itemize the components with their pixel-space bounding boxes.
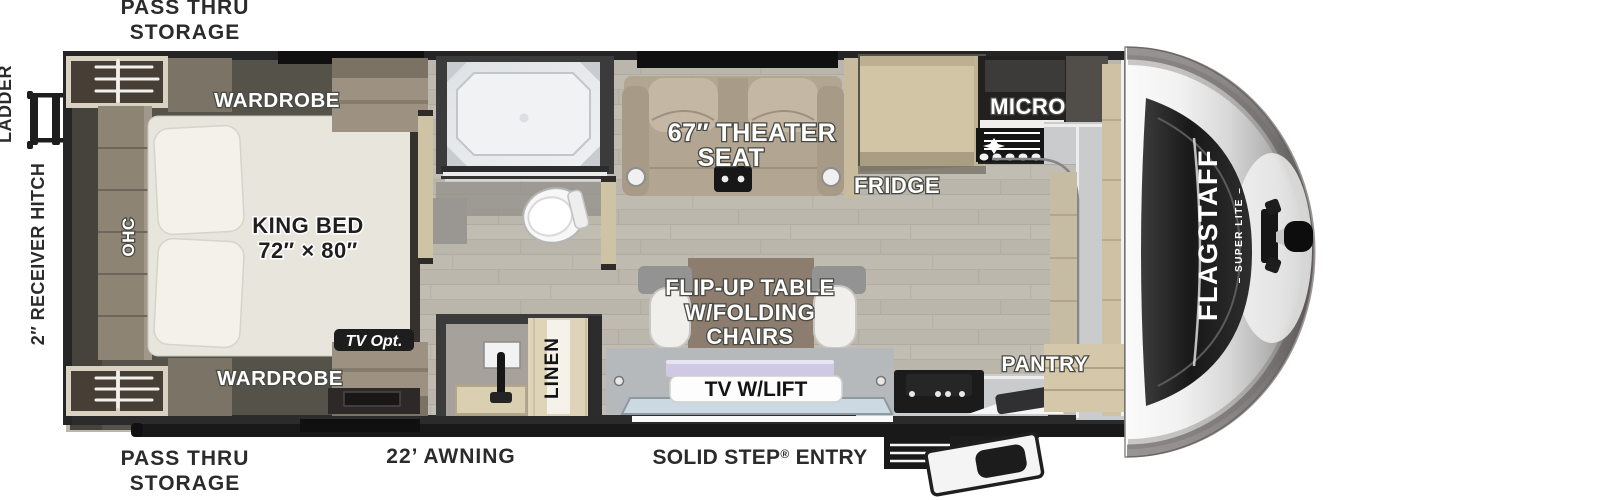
svg-text:72″ × 80″: 72″ × 80″ bbox=[258, 238, 358, 263]
svg-text:PANTRY: PANTRY bbox=[1002, 353, 1089, 376]
svg-text:KING BED: KING BED bbox=[252, 213, 364, 238]
svg-text:WARDROBE: WARDROBE bbox=[217, 367, 343, 390]
svg-text:LINEN: LINEN bbox=[542, 337, 563, 399]
svg-text:STORAGE: STORAGE bbox=[130, 472, 240, 495]
svg-text:– SUPER LITE –: – SUPER LITE – bbox=[1234, 187, 1245, 284]
svg-text:FLIP-UP TABLE: FLIP-UP TABLE bbox=[665, 275, 834, 300]
svg-text:TV W/LIFT: TV W/LIFT bbox=[705, 378, 808, 401]
svg-text:WARDROBE: WARDROBE bbox=[214, 89, 340, 112]
svg-text:CHAIRS: CHAIRS bbox=[706, 324, 793, 349]
svg-text:MICRO: MICRO bbox=[990, 94, 1066, 119]
svg-text:OHC: OHC bbox=[119, 217, 138, 256]
svg-text:2″ RECEIVER HITCH: 2″ RECEIVER HITCH bbox=[28, 163, 48, 345]
svg-text:67″ THEATER: 67″ THEATER bbox=[668, 119, 836, 147]
svg-text:FRIDGE: FRIDGE bbox=[854, 173, 940, 198]
svg-text:FLAGSTAFF: FLAGSTAFF bbox=[1193, 149, 1223, 321]
svg-text:TV Opt.: TV Opt. bbox=[346, 333, 403, 350]
svg-text:W/FOLDING: W/FOLDING bbox=[685, 300, 815, 325]
svg-text:LADDER: LADDER bbox=[0, 65, 15, 143]
svg-text:PASS THRU: PASS THRU bbox=[121, 447, 250, 470]
svg-text:PASS THRU: PASS THRU bbox=[121, 0, 250, 19]
svg-text:22’ AWNING: 22’ AWNING bbox=[386, 445, 515, 468]
svg-text:SOLID STEP® ENTRY: SOLID STEP® ENTRY bbox=[652, 446, 867, 469]
svg-text:STORAGE: STORAGE bbox=[130, 21, 240, 44]
svg-text:SEAT: SEAT bbox=[698, 144, 765, 172]
